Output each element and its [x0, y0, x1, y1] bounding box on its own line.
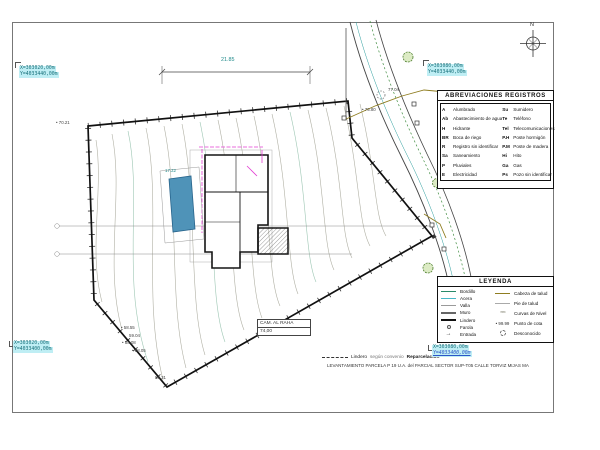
- abbreviation-row: HiHito: [502, 153, 554, 158]
- legend-sample-line-thick: [440, 317, 457, 323]
- legend-sample-line: [440, 296, 457, 302]
- legend-table: BordilloAceraVallaMuroLinderoFarola→Entr…: [438, 287, 553, 339]
- registro-squares: [342, 102, 446, 251]
- abbreviation-name: Hito: [513, 153, 554, 158]
- abbreviation-name: Electricidad: [453, 172, 502, 177]
- abbreviation-row: SaSaneamiento: [442, 153, 502, 158]
- building-footprint: [190, 150, 288, 268]
- legend-label: Valla: [460, 303, 470, 308]
- legend-label: Punto de cota: [514, 321, 542, 326]
- abbreviations-title: ABREVIACIONES REGISTROS: [438, 91, 553, 101]
- legend-row: Cabeza de talud: [494, 290, 551, 296]
- legend-sample-dot-value: • 99.99: [494, 320, 511, 326]
- abbreviation-name: Poste hormigón: [513, 135, 554, 140]
- coord-label-top-left: X=303020,00m Y=4033440,00m: [19, 66, 59, 78]
- site-plan-drawing: [0, 0, 600, 450]
- legend-row: Acera: [440, 296, 494, 302]
- abbreviation-row: EElectricidad: [442, 172, 502, 177]
- abbreviation-name: Teléfono: [513, 116, 554, 121]
- legend-col-left: BordilloAceraVallaMuroLinderoFarola→Entr…: [440, 288, 494, 338]
- abbreviation-row: AAlumbrado: [442, 107, 502, 112]
- legend-row: Desconocido: [494, 330, 551, 336]
- legend-row: Valla: [440, 303, 494, 309]
- abbreviation-code: Te: [502, 116, 513, 121]
- legend-row: Farola: [440, 324, 494, 330]
- north-label: N: [530, 22, 534, 28]
- legend-row: Muro: [440, 310, 494, 316]
- talud-lines: [344, 90, 446, 238]
- coord-y-handwritten: Y=4033400,00m: [432, 351, 472, 357]
- abbreviation-name: Poste de madera: [513, 144, 554, 149]
- legend-label: Bordillo: [460, 289, 475, 294]
- coord-y: Y=4033400,00m: [13, 347, 53, 353]
- dimension-label: 21.85: [221, 57, 235, 63]
- abbreviation-row: RRegistro sin identificar: [442, 144, 502, 149]
- abbreviation-row: PsPozo sin identificar: [502, 172, 554, 177]
- legend-label: Acera: [460, 296, 472, 301]
- legend-label: Farola: [460, 325, 473, 330]
- sheet-title-line: LEVANTAMIENTO PARCELA P 19 U.A. del PARC…: [327, 363, 552, 368]
- abbreviation-name: Alumbrado: [453, 107, 502, 112]
- legend-panel: LEYENDA BordilloAceraVallaMuroLinderoFar…: [437, 276, 554, 343]
- abbreviation-code: R: [442, 144, 453, 149]
- abbreviation-code: Ab: [442, 116, 453, 121]
- abbreviation-code: BR: [442, 135, 453, 140]
- legend-col-right: Cabeza de taludPie de talud≈≈Curvas de N…: [494, 288, 551, 338]
- abbreviation-code: Ga: [502, 163, 513, 168]
- abbreviations-col-right: SuSumideroTeTeléfonoTelTelecomunicacione…: [502, 105, 554, 179]
- coord-label-bottom-left: X=303020,00m Y=4033400,00m: [13, 341, 53, 353]
- abbreviation-code: Sa: [442, 153, 453, 158]
- legend-title: LEYENDA: [438, 277, 553, 287]
- legend-label: Entrada: [460, 332, 476, 337]
- legend-sample-line: [440, 289, 457, 295]
- tree-icons: [403, 52, 442, 273]
- abbreviation-code: P.H: [502, 135, 513, 140]
- lindero-note: Lindero según convenio Reparcelación: [322, 355, 439, 360]
- abbreviation-code: P: [442, 163, 453, 168]
- coord-label-bottom-right: X=303080,00m Y=4033400,00m: [432, 345, 472, 357]
- abbreviation-code: P.M: [502, 144, 513, 149]
- abbreviation-name: Telecomunicaciones: [513, 126, 554, 131]
- legend-label: Cabeza de talud: [514, 291, 547, 296]
- abbreviation-row: AbAbastecimiento de agua: [442, 116, 502, 121]
- name-box-line2: 74,00: [258, 328, 310, 335]
- abbreviation-name: Registro sin identificar: [453, 144, 502, 149]
- legend-sample-line-thick: [440, 310, 457, 316]
- abbreviation-name: Hidrante: [453, 126, 502, 131]
- abbreviation-code: Tel: [502, 126, 513, 131]
- legend-row: ≈≈Curvas de Nivel: [494, 310, 551, 316]
- coord-y: Y=4033440,00m: [427, 70, 467, 76]
- abbreviation-name: Boca de riego: [453, 135, 502, 140]
- legend-label: Lindero: [460, 318, 475, 323]
- abbreviations-table: AAlumbradoAbAbastecimiento de aguaHHidra…: [440, 103, 551, 181]
- lindero-subnote: según convenio: [370, 355, 404, 360]
- abbreviation-code: Su: [502, 107, 513, 112]
- abbreviation-code: E: [442, 172, 453, 177]
- legend-sample-line: [494, 290, 511, 296]
- legend-label: Desconocido: [514, 331, 541, 336]
- abbreviation-row: BRBoca de riego: [442, 135, 502, 140]
- abbreviation-name: Pozo sin identificar: [513, 172, 554, 177]
- abbreviation-row: GaGas: [502, 163, 554, 168]
- legend-sample-line: [494, 300, 511, 306]
- legend-sample-dashed-circle: [494, 330, 511, 336]
- abbreviation-row: PPluviales: [442, 163, 502, 168]
- legend-row: →Entrada: [440, 331, 494, 337]
- name-box-line1: CAM. AL RAHA: [258, 320, 310, 328]
- pool: [160, 167, 204, 243]
- abbreviation-name: Saneamiento: [453, 153, 502, 158]
- abbreviation-code: A: [442, 107, 453, 112]
- legend-label: Curvas de Nivel: [514, 311, 546, 316]
- abbreviation-row: TeTeléfono: [502, 116, 554, 121]
- legend-row: • 99.99Punto de cota: [494, 320, 551, 326]
- legend-row: Pie de talud: [494, 300, 551, 306]
- legend-row: Bordillo: [440, 289, 494, 295]
- abbreviation-code: Ps: [502, 172, 513, 177]
- legend-sample-line: [440, 303, 457, 309]
- abbreviation-code: H: [442, 126, 453, 131]
- abbreviation-name: Sumidero: [513, 107, 554, 112]
- abbreviation-row: P.MPoste de madera: [502, 144, 554, 149]
- lindero-label: Lindero: [351, 355, 367, 360]
- abbreviation-row: SuSumidero: [502, 107, 554, 112]
- dimension-line: [159, 66, 313, 84]
- legend-sample-circle: [440, 324, 457, 330]
- abbreviations-col-left: AAlumbradoAbAbastecimiento de aguaHHidra…: [442, 105, 502, 179]
- abbreviations-panel: ABREVIACIONES REGISTROS AAlumbradoAbAbas…: [437, 90, 554, 189]
- abbreviation-name: Gas: [513, 163, 554, 168]
- name-box: CAM. AL RAHA 74,00: [257, 319, 311, 336]
- hatched-annex: [258, 228, 288, 254]
- legend-sample-arrow: →: [440, 331, 457, 337]
- abbreviation-row: P.HPoste hormigón: [502, 135, 554, 140]
- legend-label: Muro: [460, 310, 470, 315]
- dashdot-line-sample: [322, 357, 348, 358]
- abbreviation-name: Abastecimiento de agua: [453, 116, 502, 121]
- abbreviation-code: Hi: [502, 153, 513, 158]
- north-arrow-icon: [520, 30, 546, 57]
- abbreviation-row: TelTelecomunicaciones: [502, 126, 554, 131]
- legend-row: Lindero: [440, 317, 494, 323]
- legend-sample-wavy: ≈≈: [494, 310, 511, 316]
- coord-y: Y=4033440,00m: [19, 72, 59, 78]
- abbreviation-row: HHidrante: [442, 126, 502, 131]
- legend-label: Pie de talud: [514, 301, 538, 306]
- abbreviation-name: Pluviales: [453, 163, 502, 168]
- coord-label-top-right: X=303080,00m Y=4033440,00m: [427, 64, 467, 76]
